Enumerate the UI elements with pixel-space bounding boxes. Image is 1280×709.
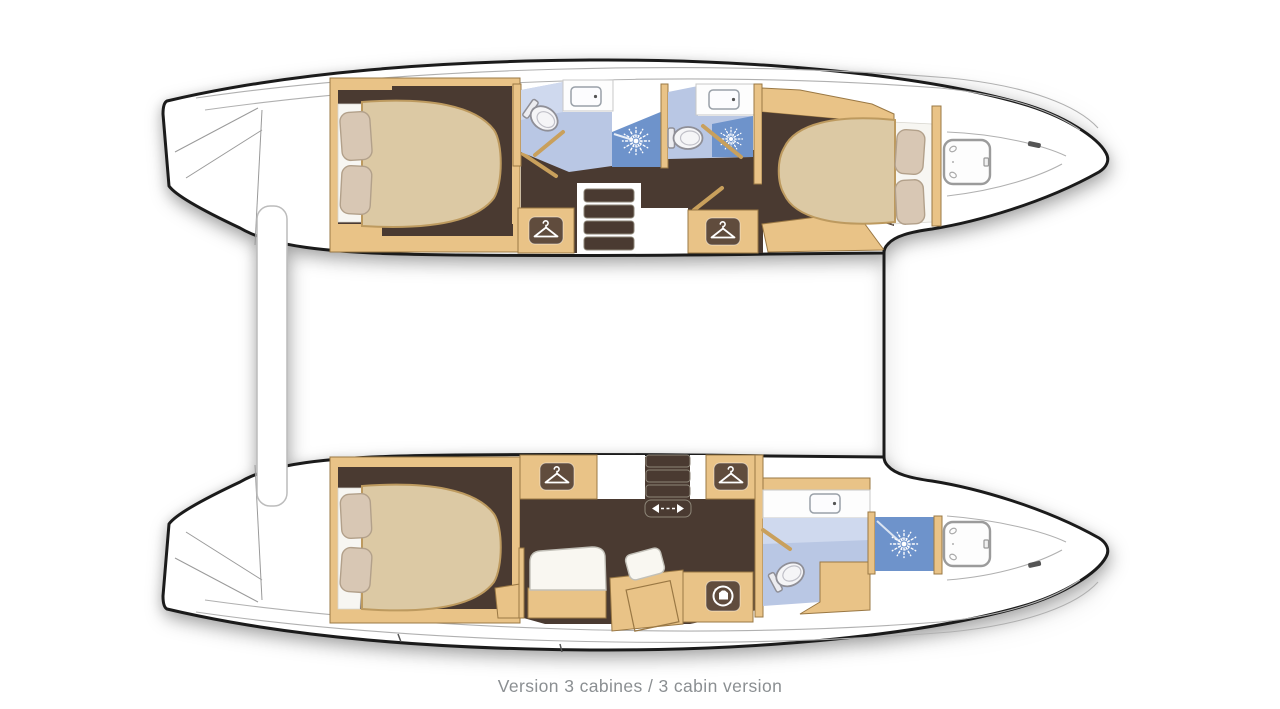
bow-bulkhead	[932, 106, 941, 226]
hanger-icon	[540, 463, 574, 490]
hanger-icon	[529, 217, 563, 244]
deck-hatch-icon	[944, 522, 990, 566]
stbd-stairs	[645, 455, 691, 517]
catamaran-floorplan	[0, 0, 1280, 709]
shelf-inset	[392, 86, 512, 102]
pillow	[340, 165, 372, 215]
port-wardrobe-aft	[518, 208, 574, 253]
hanger-icon	[714, 463, 748, 490]
stbd-wardrobe-fwd	[706, 455, 756, 499]
bath-wall	[661, 84, 668, 168]
landing	[641, 208, 688, 253]
pillow	[894, 129, 925, 175]
hanger-icon	[706, 218, 740, 245]
toilet-icon	[668, 127, 703, 149]
shower-wall	[868, 512, 875, 574]
chart-desk	[610, 570, 683, 631]
door-gap	[597, 455, 645, 499]
aft-crossbeam	[257, 206, 287, 506]
bath-wall	[755, 455, 763, 617]
sink-icon	[571, 87, 601, 106]
stbd-study-area	[495, 455, 757, 631]
seat-post	[519, 548, 524, 618]
pillow	[339, 111, 372, 161]
bow-bulkhead	[934, 516, 942, 574]
bath-cabin-wall	[754, 84, 762, 184]
deck-hatch-icon	[944, 140, 990, 184]
port-wardrobe-fwd	[688, 210, 758, 253]
pillow	[340, 493, 372, 539]
door-gap	[690, 455, 706, 499]
double-bed	[362, 485, 501, 611]
double-bed	[779, 118, 895, 223]
hull-starboard	[163, 455, 1108, 653]
sink-icon	[709, 90, 739, 109]
counter-band	[763, 478, 870, 490]
seat-cushion	[530, 547, 606, 590]
laundry-cabinet	[683, 572, 753, 622]
sink-icon	[810, 494, 840, 513]
hull-port	[163, 60, 1108, 256]
floorplan-stage: Version 3 cabines / 3 cabin version	[0, 0, 1280, 709]
pillow	[895, 179, 925, 224]
caption: Version 3 cabines / 3 cabin version	[0, 676, 1280, 697]
seat-base	[528, 588, 606, 618]
port-aft-cabin	[330, 78, 520, 252]
stbd-wardrobe-aft	[520, 455, 597, 499]
floor-wedge	[495, 584, 520, 618]
pillow	[340, 547, 373, 593]
stbd-aft-cabin	[330, 457, 520, 623]
double-bed	[362, 101, 501, 227]
cabin-bath-wall	[513, 84, 521, 166]
catamaran	[163, 60, 1108, 652]
